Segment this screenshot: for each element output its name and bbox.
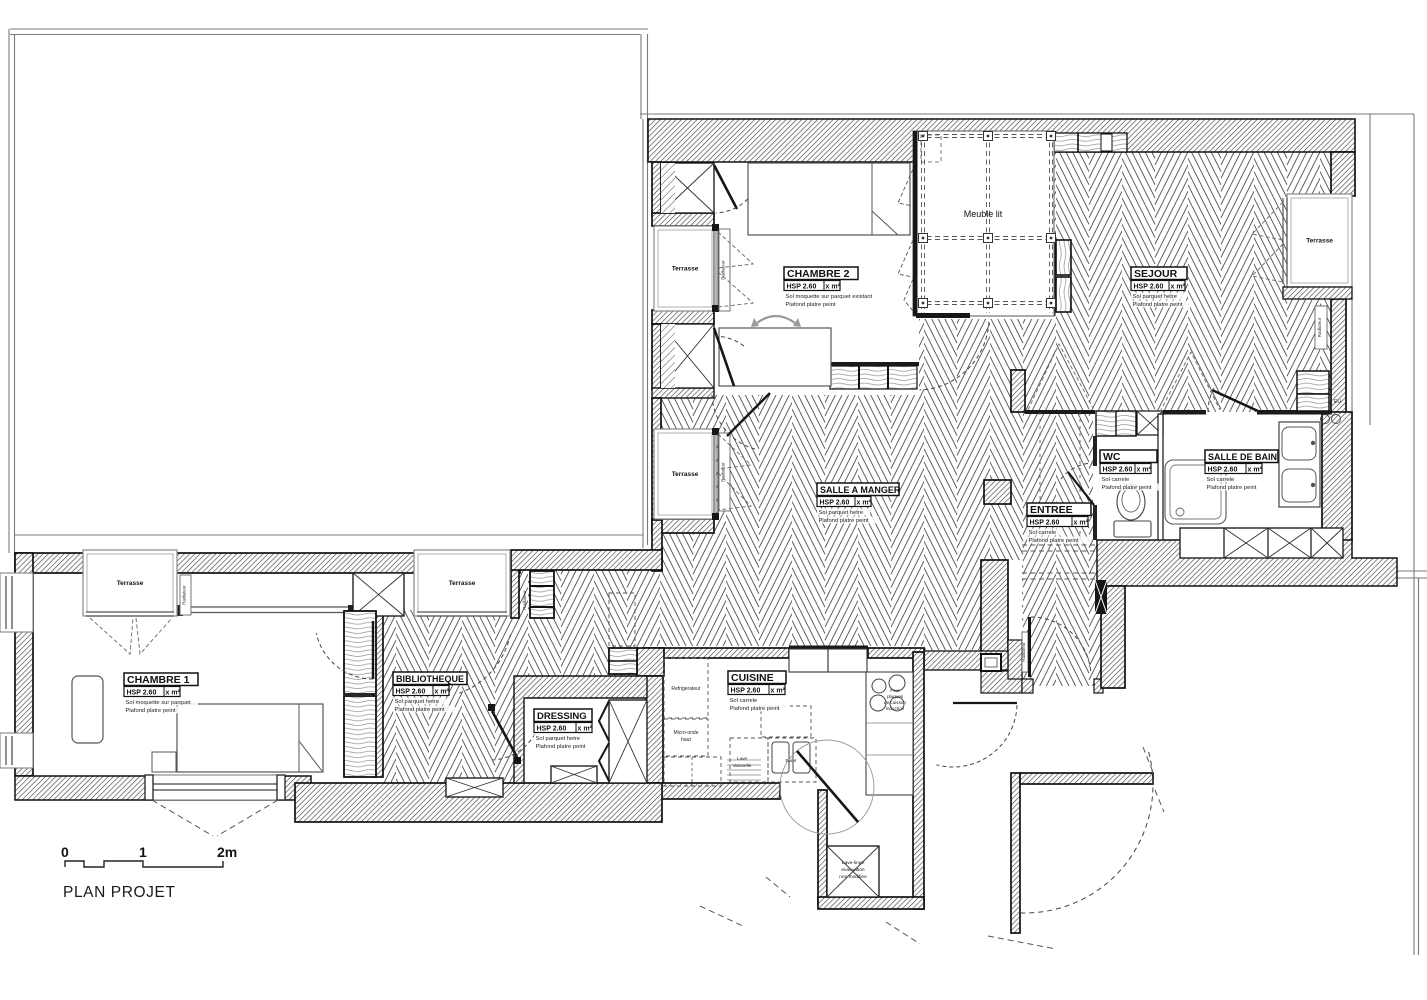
svg-text:HSP 2.60: HSP 2.60	[1208, 466, 1238, 473]
svg-text:HSP 2.60: HSP 2.60	[1103, 466, 1133, 473]
svg-text:x m²: x m²	[578, 725, 593, 732]
svg-text:Evier: Evier	[786, 758, 797, 764]
svg-text:Terrasse: Terrasse	[672, 266, 699, 273]
svg-text:EU: EU	[1334, 399, 1341, 405]
svg-text:CHAMBRE 1: CHAMBRE 1	[127, 674, 190, 686]
svg-text:Terrasse: Terrasse	[672, 471, 699, 478]
svg-text:plaques: plaques	[887, 694, 904, 699]
svg-text:CUISINE: CUISINE	[731, 672, 774, 684]
svg-text:Four: Four	[890, 688, 900, 693]
svg-text:BIBLIOTHEQUE: BIBLIOTHEQUE	[396, 674, 464, 684]
svg-text:x m²: x m²	[435, 688, 450, 695]
svg-text:HSP 2.60: HSP 2.60	[1134, 283, 1164, 290]
svg-text:Meuble lit: Meuble lit	[964, 209, 1003, 219]
svg-text:WC: WC	[1103, 451, 1121, 463]
svg-text:HSP 2.60: HSP 2.60	[1030, 519, 1060, 526]
svg-text:Sol parquet hetre: Sol parquet hetre	[395, 699, 439, 705]
svg-text:Plafond platre peint: Plafond platre peint	[1029, 538, 1079, 544]
svg-text:Sol moquette sur parquet: Sol moquette sur parquet	[126, 700, 191, 706]
svg-text:x m²: x m²	[1137, 466, 1152, 473]
svg-text:Sol carrele: Sol carrele	[1207, 477, 1235, 483]
svg-text:Sol parquet hetre: Sol parquet hetre	[536, 736, 580, 742]
svg-text:HSP 2.60: HSP 2.60	[127, 689, 157, 696]
svg-text:Terrasse: Terrasse	[1306, 238, 1333, 245]
svg-text:Lave-linge: Lave-linge	[842, 860, 864, 866]
svg-text:HSP 2.60: HSP 2.60	[787, 283, 817, 290]
svg-text:Plafond platre peint: Plafond platre peint	[1102, 485, 1152, 491]
svg-text:CHAMBRE 2: CHAMBRE 2	[787, 268, 850, 280]
svg-text:HSP 2.60: HSP 2.60	[731, 687, 761, 694]
svg-text:Plafond platre peint: Plafond platre peint	[819, 518, 869, 524]
svg-text:Plafond platre peint: Plafond platre peint	[1207, 485, 1257, 491]
svg-text:evacuation: evacuation	[841, 867, 865, 873]
svg-text:Sol carrele: Sol carrele	[1102, 477, 1130, 483]
svg-text:Sol parquet hetre: Sol parquet hetre	[819, 510, 863, 516]
svg-text:Vaisselle: Vaisselle	[733, 763, 752, 769]
svg-text:HSP 2.60: HSP 2.60	[537, 725, 567, 732]
svg-text:Sol moquette sur parquet exist: Sol moquette sur parquet existant	[786, 294, 873, 300]
svg-text:Radiateur: Radiateur	[1317, 317, 1322, 337]
svg-text:Terrasse: Terrasse	[117, 580, 144, 587]
svg-text:Plafond platre peint: Plafond platre peint	[786, 302, 836, 308]
svg-text:Plafond platre peint: Plafond platre peint	[126, 708, 176, 714]
svg-text:x m²: x m²	[166, 689, 181, 696]
svg-text:0: 0	[61, 844, 69, 860]
svg-text:x m²: x m²	[1074, 519, 1089, 526]
svg-text:Sol carrele: Sol carrele	[1029, 530, 1057, 536]
svg-text:SALLE DE BAIN: SALLE DE BAIN	[1208, 452, 1277, 462]
svg-text:Plafond platre peint: Plafond platre peint	[536, 744, 586, 750]
svg-text:SEJOUR: SEJOUR	[1134, 268, 1178, 280]
svg-text:x m²: x m²	[1248, 466, 1263, 473]
svg-text:Plafond platre peint: Plafond platre peint	[395, 707, 445, 713]
svg-text:ENTREE: ENTREE	[1030, 504, 1073, 516]
svg-text:Sol parquet hetre: Sol parquet hetre	[1133, 294, 1177, 300]
svg-text:Micro-onde: Micro-onde	[673, 730, 698, 736]
svg-text:1: 1	[139, 844, 147, 860]
svg-text:Terrasse: Terrasse	[449, 580, 476, 587]
svg-text:Radiateur: Radiateur	[522, 590, 527, 610]
svg-text:de cuisson: de cuisson	[884, 700, 906, 705]
svg-text:x m²: x m²	[1171, 283, 1186, 290]
svg-text:non modifiee: non modifiee	[839, 874, 867, 880]
svg-text:HSP 2.60: HSP 2.60	[820, 499, 850, 506]
svg-text:Plafond platre peint: Plafond platre peint	[730, 706, 780, 712]
svg-text:DRESSING: DRESSING	[537, 711, 587, 722]
svg-text:x m²: x m²	[826, 283, 841, 290]
svg-text:Radiateur: Radiateur	[1021, 642, 1026, 662]
svg-text:Radiateur: Radiateur	[182, 585, 187, 605]
svg-text:SALLE A MANGER: SALLE A MANGER	[820, 485, 901, 495]
svg-text:PLAN PROJET: PLAN PROJET	[63, 884, 176, 901]
svg-text:Radiateur: Radiateur	[721, 462, 726, 482]
svg-text:x m²: x m²	[771, 687, 786, 694]
svg-text:Lave: Lave	[737, 756, 748, 762]
svg-text:2m: 2m	[217, 844, 237, 860]
svg-text:induction: induction	[886, 706, 905, 711]
svg-text:Sol carrele: Sol carrele	[730, 698, 758, 704]
svg-text:x m²: x m²	[857, 499, 872, 506]
svg-text:Plafond platre peint: Plafond platre peint	[1133, 302, 1183, 308]
svg-text:haut: haut	[681, 737, 691, 743]
svg-text:Refrigerateur: Refrigerateur	[671, 686, 701, 692]
svg-text:HSP 2.60: HSP 2.60	[396, 688, 426, 695]
